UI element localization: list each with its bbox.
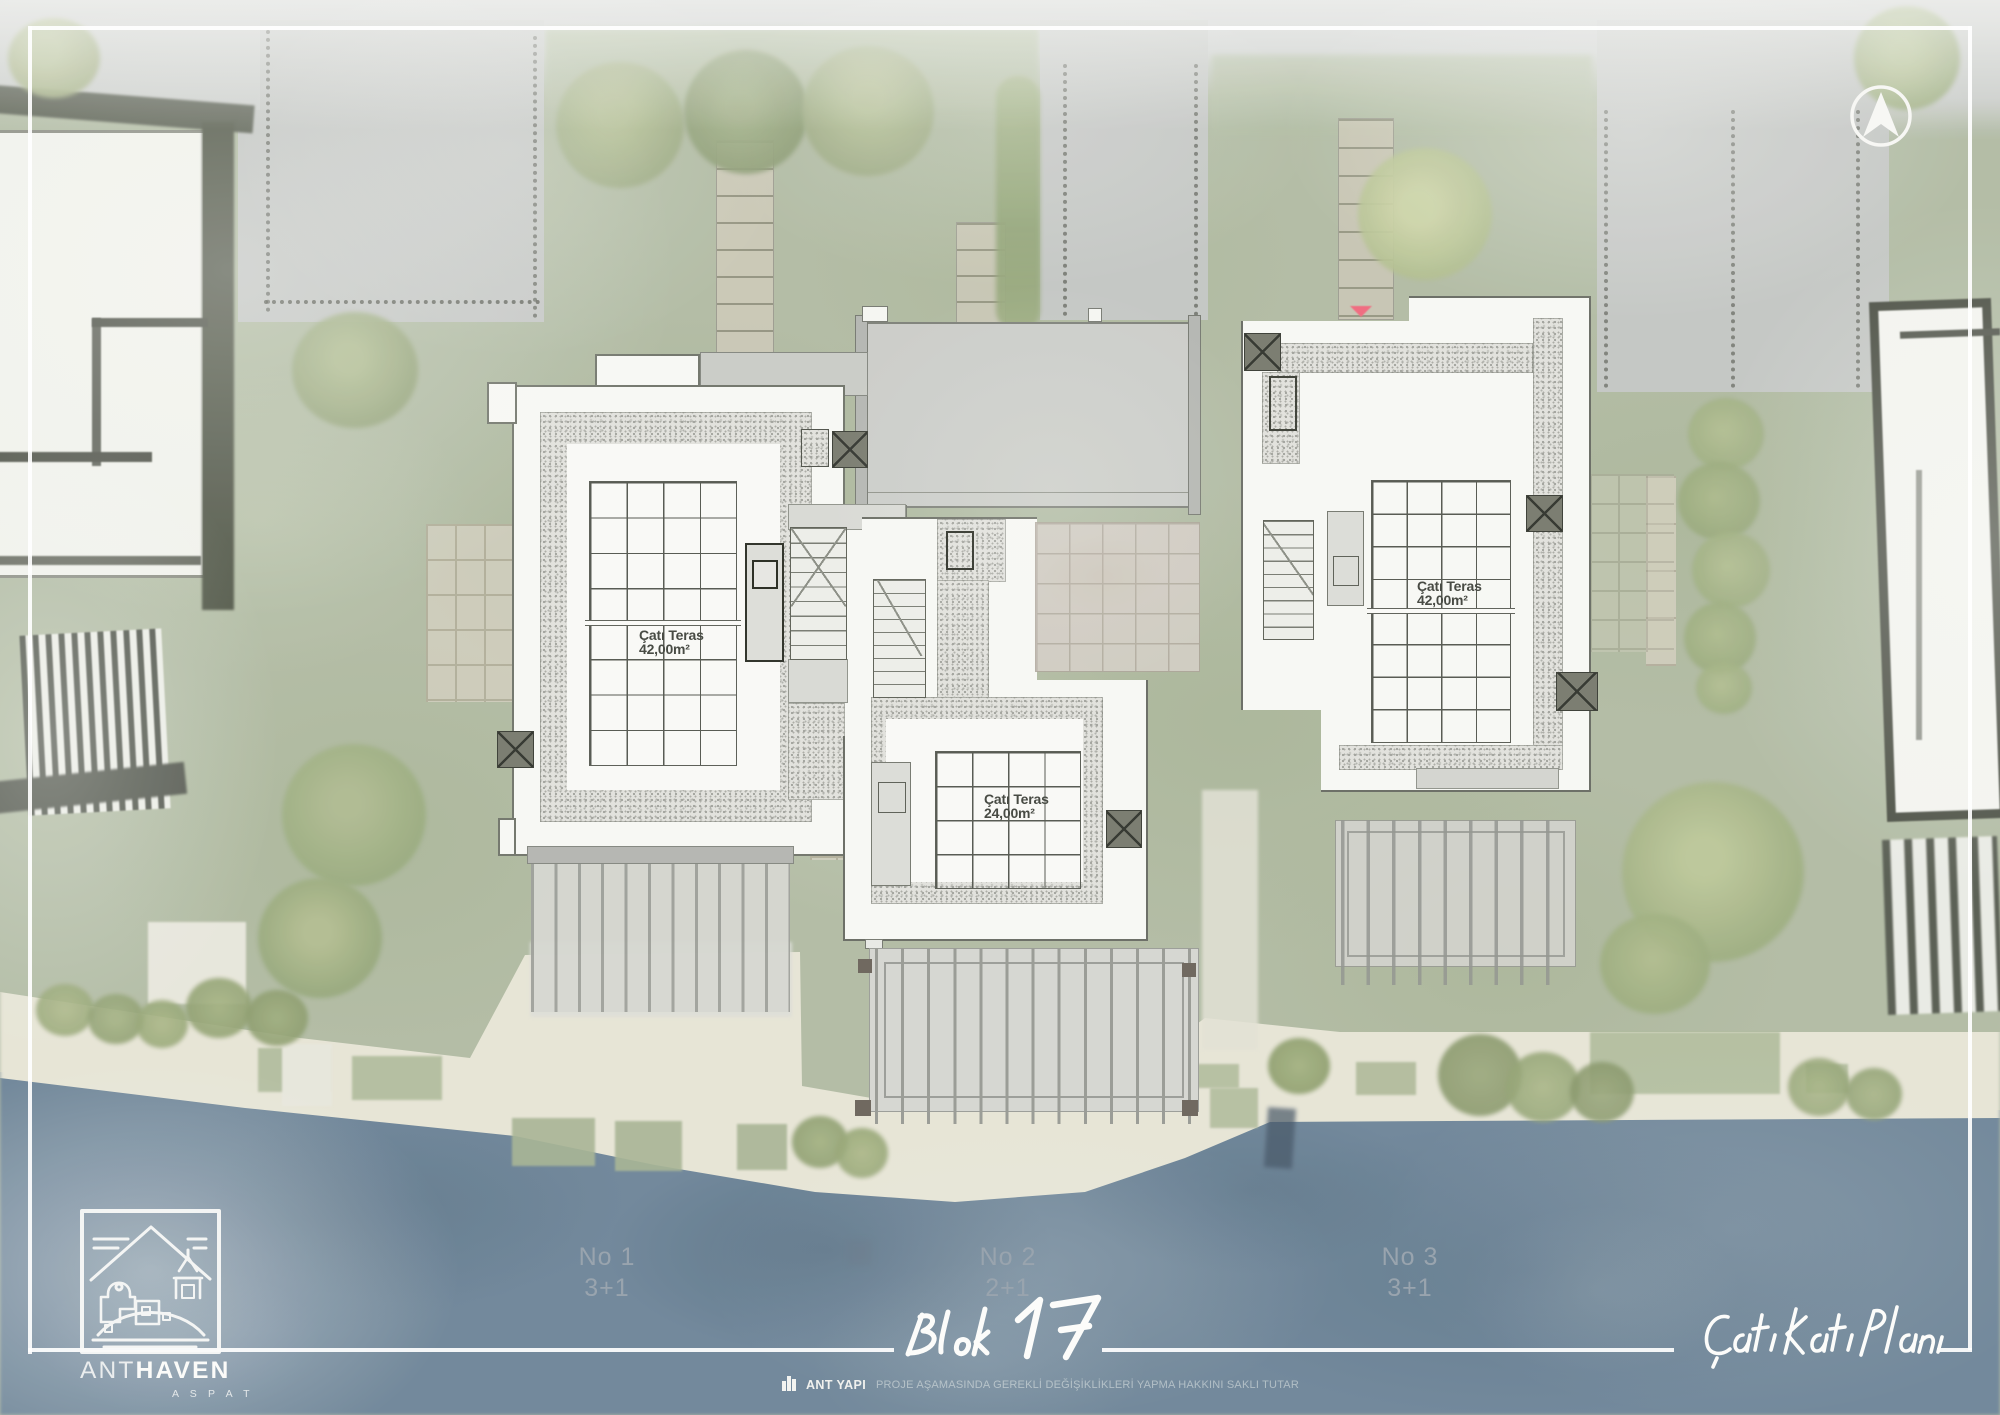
svg-text:ANTHAVEN: ANTHAVEN xyxy=(80,1357,231,1384)
svg-text:A S P A T: A S P A T xyxy=(172,1388,254,1400)
